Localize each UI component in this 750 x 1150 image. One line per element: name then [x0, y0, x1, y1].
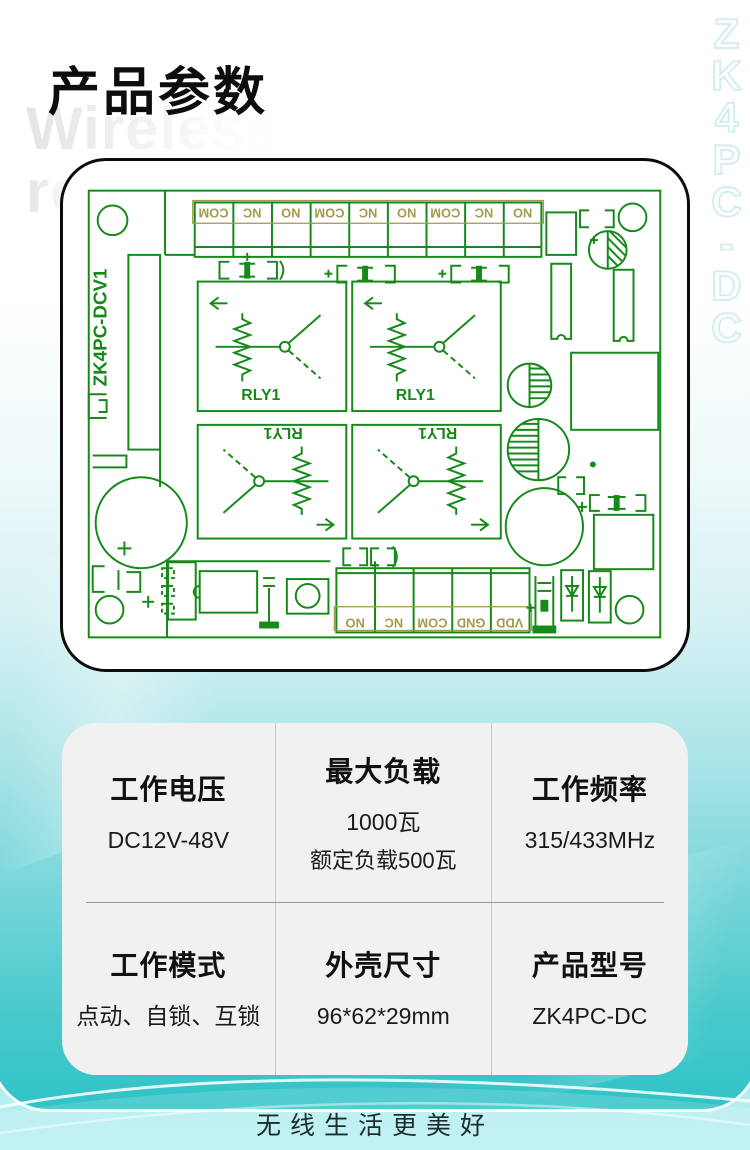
spec-label: 工作频率 [532, 768, 648, 808]
spec-value: ZK4PC-DC [532, 1000, 647, 1033]
relay-label: RLY1 [396, 387, 435, 404]
spec-label: 最大负载 [325, 750, 441, 790]
relay-symbol: RLY1 [211, 297, 321, 404]
spec-cell-frequency: 工作频率 315/433MHz [491, 723, 688, 902]
electrolytic-capacitor [96, 477, 187, 568]
spec-value: DC12V-48V [108, 824, 229, 857]
mounting-hole [98, 205, 128, 235]
relay-label: RLY1 [263, 424, 302, 441]
relay-symbol-rotated: RLY1 [378, 424, 488, 531]
terminal-label: NO [397, 205, 416, 220]
terminal-label: GND [457, 616, 486, 631]
terminal-label: NC [243, 205, 262, 220]
terminal-label: COM [417, 616, 447, 631]
hatched-pad [508, 364, 555, 407]
spec-label: 工作电压 [110, 768, 226, 808]
spec-table-card: 工作电压 DC12V-48V 最大负载 1000瓦 额定负载500瓦 工作频率 … [62, 723, 688, 1075]
terminal-label: NC [475, 205, 494, 220]
spec-cell-voltage: 工作电压 DC12V-48V [62, 723, 275, 902]
page-title: 产品参数 [48, 50, 268, 125]
spec-cell-mode: 工作模式 点动、自锁、互锁 [62, 902, 275, 1075]
terminal-label: COM [314, 205, 344, 220]
page: Wireless re 产品参数 ZK4PC-DC ZK4PC [0, 0, 750, 1150]
relay-symbol-rotated: RLY1 [223, 424, 333, 531]
table-row-divider [86, 902, 664, 903]
pcb-image-card: ZK4PC-DCV1 COM NC NO COM NC NO [60, 158, 690, 672]
spec-label: 工作模式 [110, 944, 226, 984]
mounting-hole [96, 596, 124, 624]
relay-label: RLY1 [418, 424, 457, 441]
spec-value: 96*62*29mm [317, 1000, 450, 1033]
board-model-text: ZK4PC-DCV1 [90, 269, 111, 387]
spec-label: 产品型号 [532, 944, 648, 984]
relay-label: RLY1 [241, 387, 280, 404]
terminal-label: COM [430, 205, 460, 220]
terminal-label: NC [385, 616, 404, 631]
spec-value-extra: 额定负载500瓦 [310, 843, 457, 875]
spec-value: 1000瓦 [346, 806, 420, 839]
terminal-label: VDD [496, 616, 523, 631]
spec-value: 315/433MHz [525, 824, 655, 857]
terminal-label: NO [346, 616, 365, 631]
bottom-terminal-block: NO NC COM GND VDD [334, 546, 531, 632]
terminal-label: NC [359, 205, 378, 220]
relay-symbol: RLY1 [365, 297, 475, 404]
spec-cell-size: 外壳尺寸 96*62*29mm [275, 902, 491, 1075]
capacitor-symbol [438, 266, 508, 283]
top-terminal-block: COM NC NO COM NC NO COM NC NO [193, 201, 544, 257]
spec-grid: 工作电压 DC12V-48V 最大负载 1000瓦 额定负载500瓦 工作频率 … [62, 723, 688, 1075]
hatched-pad [505, 419, 569, 480]
capacitor-symbol [590, 495, 645, 511]
pcb-diagram: ZK4PC-DCV1 COM NC NO COM NC NO [63, 161, 687, 669]
diode-symbol [561, 570, 583, 620]
mounting-hole [619, 203, 647, 231]
spec-value: 点动、自锁、互锁 [76, 1000, 260, 1033]
ic-chip [200, 571, 257, 613]
terminal-label: COM [199, 205, 229, 220]
mounting-hole [616, 596, 644, 624]
side-model-text: ZK4PC-DC [702, 10, 750, 346]
spec-cell-max-load: 最大负载 1000瓦 额定负载500瓦 [275, 723, 491, 902]
terminal-label: NO [513, 205, 532, 220]
spec-label: 外壳尺寸 [325, 944, 441, 984]
capacitor-symbol [324, 266, 394, 283]
spec-cell-model: 产品型号 ZK4PC-DC [491, 902, 688, 1075]
footer-slogan: 无线生活更美好 [0, 1106, 750, 1142]
diode-symbol [589, 571, 611, 622]
terminal-label: NO [281, 205, 300, 220]
